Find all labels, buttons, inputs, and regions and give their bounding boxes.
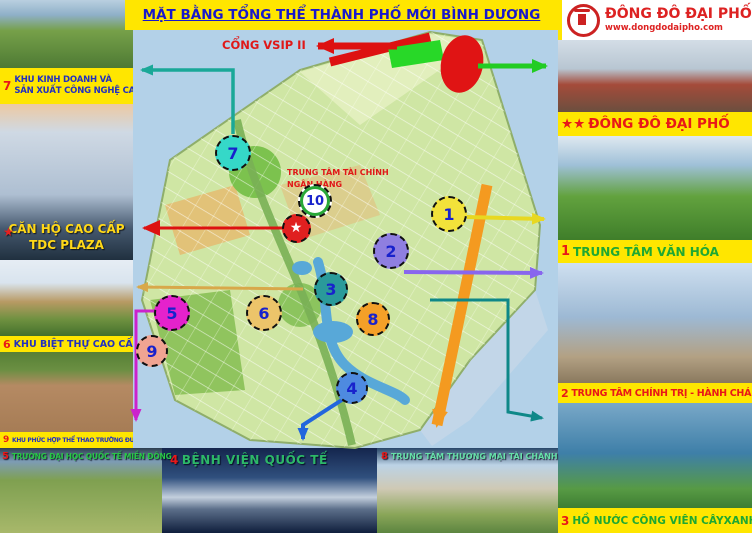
map-marker-10: 10 xyxy=(298,184,332,218)
caption-zone-7-number: 7 xyxy=(3,79,11,93)
caption-zone-6: 6 KHU BIỆT THỰ CAO CẤP xyxy=(0,336,133,352)
dongdo-gate-icon xyxy=(567,4,600,37)
map-marker-star: ★ xyxy=(282,214,311,243)
caption-zone-8: 8 TRUNG TÂM THƯƠNG MẠI TÀI CHÁNH xyxy=(381,451,558,462)
gate-vsip-label: CỔNG VSIP II xyxy=(222,38,306,52)
photo-admin-center xyxy=(558,263,752,383)
map-marker-4: 4 xyxy=(336,372,368,404)
map-marker-6: 6 xyxy=(246,295,282,331)
two-stars-icon: ★★ xyxy=(561,116,585,132)
photo-lake-park xyxy=(558,403,752,508)
poster: MẶT BẰNG TỔNG THỂ THÀNH PHỐ MỚI BÌNH DƯƠ… xyxy=(0,0,752,533)
caption-zone-3: 3 HỒ NƯỚC CÔNG VIÊN CÂYXANH xyxy=(558,508,752,533)
caption-zone-4: 4 BỆNH VIỆN QUỐC TẾ xyxy=(170,453,328,467)
caption-zone-7: 7 KHU KINH DOANH VÀ SẢN XUẤT CÔNG NGHỆ C… xyxy=(0,68,133,104)
caption-zone-5: 5 TRƯỜNG ĐẠI HỌC QUỐC TẾ MIỀN ĐÔNG xyxy=(2,451,172,462)
logo-website: www.dongdodaipho.com xyxy=(605,23,752,33)
page-title: MẶT BẰNG TỔNG THỂ THÀNH PHỐ MỚI BÌNH DƯƠ… xyxy=(143,7,541,23)
photo-horse-racing xyxy=(0,352,133,432)
map-marker-7: 7 xyxy=(215,135,251,171)
map-marker-8: 8 xyxy=(356,302,390,336)
title-bar: MẶT BẰNG TỔNG THỂ THÀNH PHỐ MỚI BÌNH DƯƠ… xyxy=(125,0,558,30)
photo-culture-center xyxy=(558,136,752,240)
map-marker-5: 5 xyxy=(154,295,190,331)
logo: ĐÔNG ĐÔ ĐẠI PHỐ www.dongdodaipho.com xyxy=(558,0,752,40)
caption-tdc-plaza: ★ CĂN HỘ CAO CẤP TDC PLAZA xyxy=(0,222,133,253)
red-star-icon: ★ xyxy=(3,225,14,241)
map-marker-1: 1 xyxy=(431,196,467,232)
logo-name: ĐÔNG ĐÔ ĐẠI PHỐ xyxy=(605,7,752,22)
photo-villas xyxy=(0,260,133,336)
map-marker-3: 3 xyxy=(314,272,348,306)
caption-dongdo-brand: ★★ ĐÔNG ĐÔ ĐẠI PHỐ xyxy=(558,112,752,136)
caption-zone-2: 2 TRUNG TÂM CHÍNH TRỊ - HÀNH CHÁNH xyxy=(558,383,752,403)
photo-shopping-street xyxy=(558,40,752,112)
caption-zone-9: 9 KHU PHỨC HỢP THỂ THAO TRƯỜNG ĐUA NGỰA xyxy=(0,432,133,448)
map-marker-9: 9 xyxy=(136,335,168,367)
caption-zone-1: 1 TRUNG TÂM VĂN HÓA xyxy=(558,240,752,263)
finance-center-label: TRUNG TÂM TÀI CHÍNH NGÂN HÀNG xyxy=(287,167,389,191)
map-marker-2: 2 xyxy=(373,233,409,269)
photo-business-park xyxy=(0,0,133,68)
